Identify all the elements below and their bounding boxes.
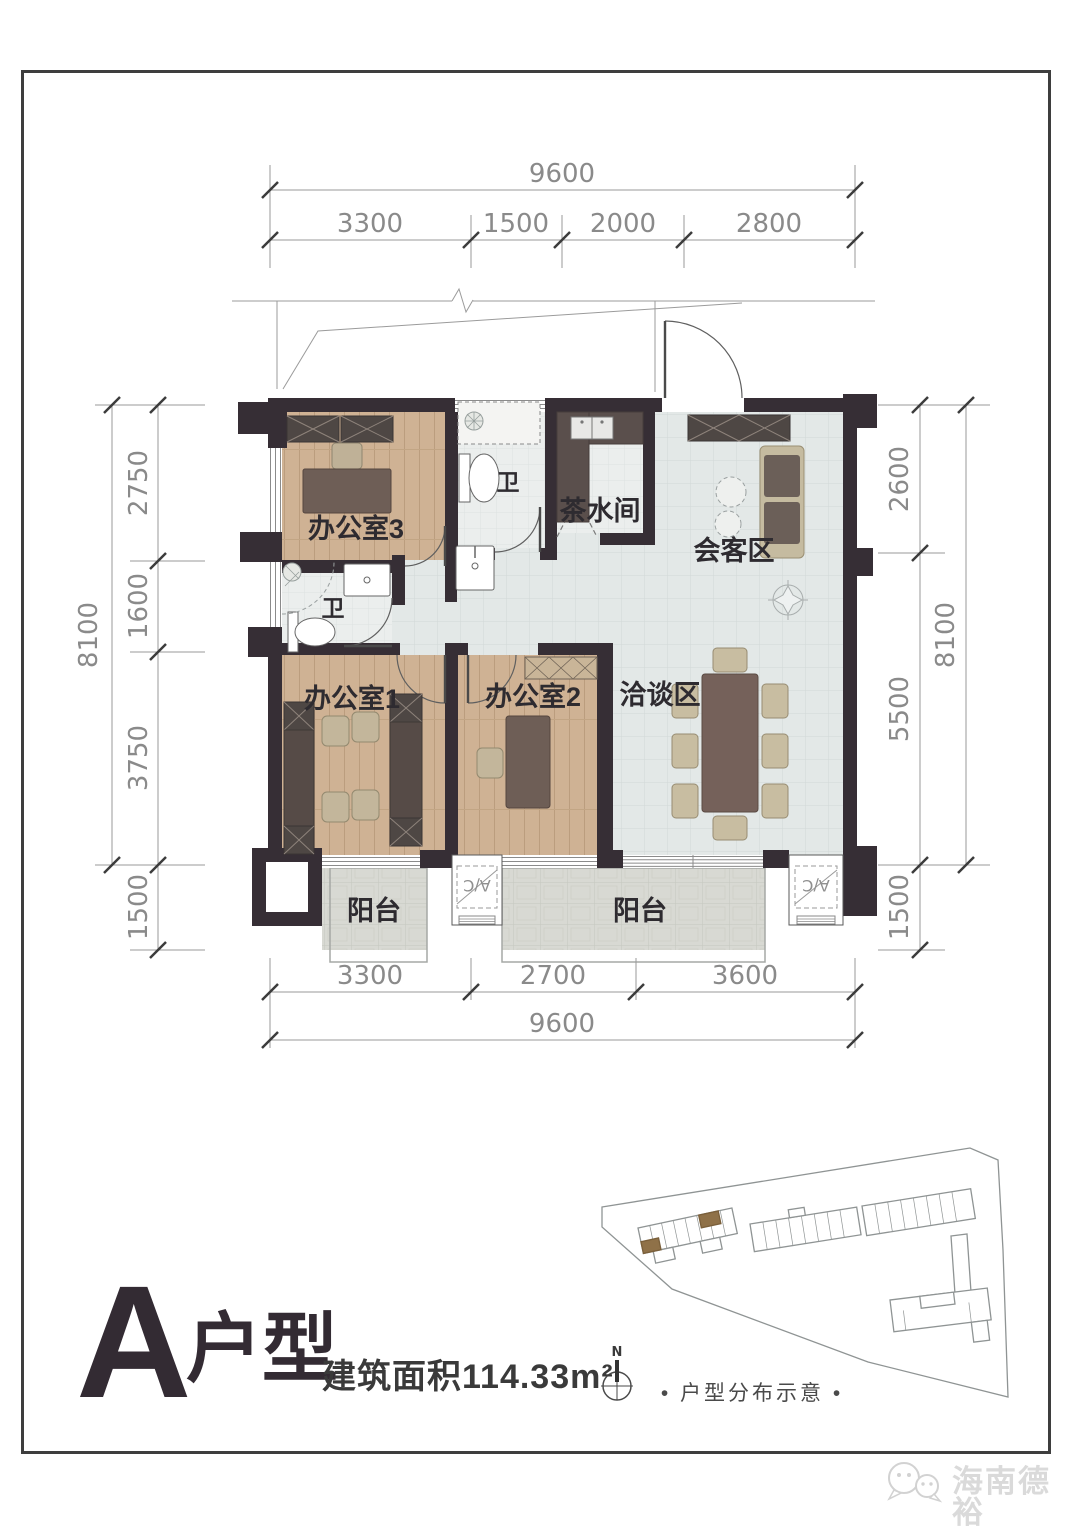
dimension-left: 8100 2750 1600 3750 1500 (74, 397, 205, 958)
site-building-3 (862, 1189, 975, 1236)
dim-bottom-total: 9600 (529, 1009, 595, 1039)
dim-top-total: 9600 (529, 159, 595, 189)
floor-plan-page: 办公室3 卫 茶水间 会客区 卫 办公室1 办公室2 洽谈区 阳台 阳台 A/C… (0, 0, 1080, 1527)
dim-right-seg2: 5500 (885, 676, 915, 742)
watermark-brand: 海南德裕 (952, 1466, 1080, 1527)
dim-right-total: 8100 (931, 602, 961, 668)
unit-area-label: 建筑面积114.33m² (322, 1360, 614, 1394)
room-label-balcony-right: 阳台 (613, 895, 667, 926)
site-building-1 (638, 1208, 740, 1265)
hollow-column (266, 862, 308, 912)
site-building-4 (890, 1288, 994, 1352)
dim-bottom-seg1: 3300 (337, 961, 403, 991)
unit-letter: A (76, 1262, 186, 1422)
dim-right-balcony: 1500 (885, 874, 915, 940)
dimension-bottom: 3300 2700 3600 9600 (262, 958, 863, 1048)
dim-left-balcony: 1500 (124, 874, 154, 940)
dim-left-seg2: 1600 (124, 573, 154, 639)
room-label-toilet-top: 卫 (497, 469, 520, 495)
dim-bottom-seg2: 2700 (520, 961, 586, 991)
site-building-2 (749, 1199, 861, 1251)
room-label-tea-room: 茶水间 (560, 496, 641, 526)
dimension-right: 2600 5500 1500 8100 (878, 397, 990, 958)
dim-bottom-seg3: 3600 (712, 961, 778, 991)
room-label-negotiation: 洽谈区 (620, 680, 701, 710)
site-plan-caption: • 户型分布示意 • (661, 1382, 843, 1405)
room-label-reception: 会客区 (694, 535, 775, 566)
dim-top-seg4: 2800 (736, 209, 802, 239)
room-label-office1: 办公室1 (304, 683, 400, 714)
site-plan: • 户型分布示意 • (602, 1148, 1008, 1405)
dimension-top: 9600 3300 1500 2000 2800 (262, 159, 863, 268)
dim-right-seg1: 2600 (885, 446, 915, 512)
dim-left-seg3: 3750 (124, 725, 154, 791)
canopy-lines (232, 289, 875, 392)
wechat-logo-icon (889, 1463, 940, 1501)
ac-label-right: A/C (802, 876, 830, 895)
break-symbol (452, 289, 473, 312)
unit-type-label: 户型 (186, 1312, 338, 1388)
room-label-office3: 办公室3 (308, 513, 404, 544)
room-label-toilet-left: 卫 (322, 595, 345, 621)
dim-left-seg1: 2750 (124, 450, 154, 516)
dim-top-seg2: 1500 (483, 209, 549, 239)
dim-top-seg3: 2000 (590, 209, 656, 239)
room-label-office2: 办公室2 (485, 681, 581, 712)
entrance-door-arc (665, 321, 742, 398)
ac-label-left: A/C (463, 876, 491, 895)
room-label-balcony-left: 阳台 (347, 895, 401, 926)
site-building-wing (951, 1234, 971, 1294)
dim-left-total: 8100 (74, 602, 104, 668)
dim-top-seg1: 3300 (337, 209, 403, 239)
